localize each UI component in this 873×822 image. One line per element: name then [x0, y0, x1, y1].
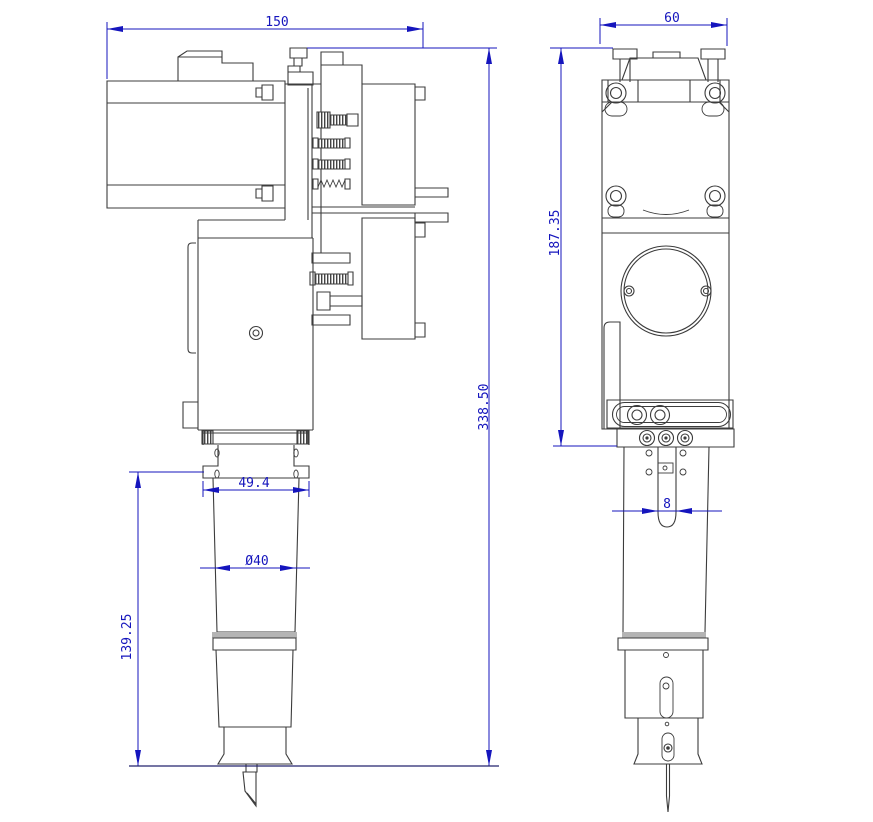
barrel-flange-outline — [213, 638, 296, 650]
boss-petal — [605, 102, 627, 116]
dim-60-label: 60 — [664, 11, 680, 26]
body-screw-inner — [253, 330, 259, 336]
side-view — [602, 49, 734, 812]
dim-338-arrow-top — [486, 48, 492, 64]
upper-block-outline — [312, 84, 448, 222]
pin-hole — [646, 469, 652, 475]
clamp-hole-outer — [628, 406, 647, 425]
section-slot-hole — [663, 683, 669, 689]
dimension-overall-width: 150 — [107, 15, 423, 79]
lower-band — [622, 632, 706, 638]
dim-49-arrow-left — [203, 487, 219, 493]
dim-150-label: 150 — [265, 15, 288, 30]
dim-338-arrow-bottom — [486, 750, 492, 766]
dim-40-arrow-left — [214, 565, 230, 571]
tip-section-outline — [634, 718, 702, 764]
mount-hole-inner — [627, 289, 632, 294]
barrel-mid-outline — [216, 650, 293, 727]
bars-outline — [310, 253, 362, 325]
tip-slot-hole-dot — [666, 746, 670, 750]
boss-screw-outer — [606, 83, 626, 103]
mount-circle-inner — [624, 249, 708, 333]
spring-coil — [318, 180, 345, 187]
drawing-canvas: 150 60 338.50 187.35 — [0, 0, 873, 817]
main-body-outline — [183, 208, 313, 430]
boss-screw-inner — [710, 88, 721, 99]
dim-139-arrow-bottom — [135, 750, 141, 766]
dim-49-arrow-right — [293, 487, 309, 493]
dimension-overall-depth: 60 — [600, 11, 727, 46]
dim-338-label: 338.50 — [477, 384, 492, 431]
plate-screw-dot — [645, 436, 648, 439]
dimension-slot-width: 8 — [612, 497, 722, 514]
dim-187-arrow-top — [558, 48, 564, 64]
neck-slot-hole — [294, 470, 298, 478]
boss-screw-outer — [705, 186, 725, 206]
dim-60-arrow-left — [600, 22, 616, 28]
stud-head-hatch — [317, 112, 330, 128]
blade-outline — [243, 764, 257, 806]
dim-187-label: 187.35 — [548, 210, 563, 257]
front-view — [107, 48, 448, 806]
boss-screw-inner — [611, 191, 622, 202]
clamp-stadium-inner — [617, 407, 727, 423]
dim-150-extension-lines — [107, 22, 423, 79]
lower-flange-outline — [618, 638, 708, 650]
boss-screw-inner — [611, 88, 622, 99]
pin-hole — [680, 450, 686, 456]
bar-hatch — [315, 274, 348, 284]
triple-screw-plate — [617, 429, 734, 447]
guide-slot-outline — [658, 447, 676, 527]
section-hole — [664, 653, 669, 658]
base-plate-outline — [202, 430, 309, 445]
dimension-flange-width: 49.4 — [203, 476, 309, 497]
screw-bosses — [605, 83, 725, 217]
barrel-band — [212, 632, 297, 638]
neck-slot-hole — [215, 470, 219, 478]
dim-8-arrow-left — [642, 508, 658, 514]
dimension-barrel-diameter: Ø40 — [200, 554, 310, 571]
triple-plate-outline — [617, 429, 734, 447]
dim-139-arrow-top — [135, 472, 141, 488]
plate-screw-dot — [664, 436, 667, 439]
dim-8-arrow-right — [676, 508, 692, 514]
lower-cylinder-walls — [623, 447, 709, 632]
clamp-hole-inner — [655, 410, 665, 420]
barrel-tip-outline — [218, 727, 292, 764]
barrel — [212, 478, 299, 806]
pin-hole — [646, 450, 652, 456]
body-screw-outer — [250, 327, 263, 340]
dim-40-arrow-right — [280, 565, 296, 571]
technical-drawing: 150 60 338.50 187.35 — [0, 0, 873, 817]
bracket-column-outline — [285, 48, 362, 253]
motor-mount-circle — [621, 246, 711, 336]
threaded-studs — [313, 112, 358, 189]
dim-150-arrow-left — [107, 26, 123, 32]
clamp-plate — [607, 400, 733, 428]
dimensions: 150 60 338.50 187.35 — [107, 11, 727, 766]
mount-hole-outer — [624, 286, 634, 296]
boss-screw-outer — [606, 186, 626, 206]
dim-187-arrow-bottom — [558, 430, 564, 446]
motor-outline — [107, 81, 285, 208]
boss-petal — [707, 205, 723, 217]
pin-hole — [680, 469, 686, 475]
dimension-lower-height: 139.25 — [120, 472, 204, 766]
slot-key-block — [658, 463, 673, 473]
clamp-hole-outer — [651, 406, 670, 425]
dim-139-label: 139.25 — [120, 614, 135, 661]
lower-block-outline — [362, 218, 425, 339]
housing-outline — [602, 80, 729, 429]
boss-petal — [608, 205, 624, 217]
side-strip-outline — [604, 322, 620, 429]
needle-outline — [667, 764, 670, 812]
slot-key-hole — [663, 466, 667, 470]
motor-connector-outline — [178, 51, 253, 81]
main-body — [183, 208, 313, 445]
dim-8-label: 8 — [663, 497, 671, 512]
dim-60-arrow-right — [711, 22, 727, 28]
stud-rod-hatch-1 — [318, 139, 345, 148]
dim-150-arrow-right — [407, 26, 423, 32]
stud-rod-hatch-2 — [318, 160, 345, 169]
plate-screw-dot — [683, 436, 686, 439]
neck-flange — [203, 445, 309, 478]
boss-screw-outer — [705, 83, 725, 103]
tip-mark — [665, 722, 669, 726]
stud-shaft-hatch — [330, 115, 347, 125]
dim-49-label: 49.4 — [238, 476, 269, 491]
dim-40-label: Ø40 — [245, 554, 268, 569]
clamp-hole-inner — [632, 410, 642, 420]
dimension-overall-height: 338.50 — [477, 48, 492, 766]
boss-screw-inner — [710, 191, 721, 202]
mount-hole-outer — [701, 286, 711, 296]
linkage-bars — [310, 253, 362, 325]
housing-arc — [643, 210, 689, 215]
